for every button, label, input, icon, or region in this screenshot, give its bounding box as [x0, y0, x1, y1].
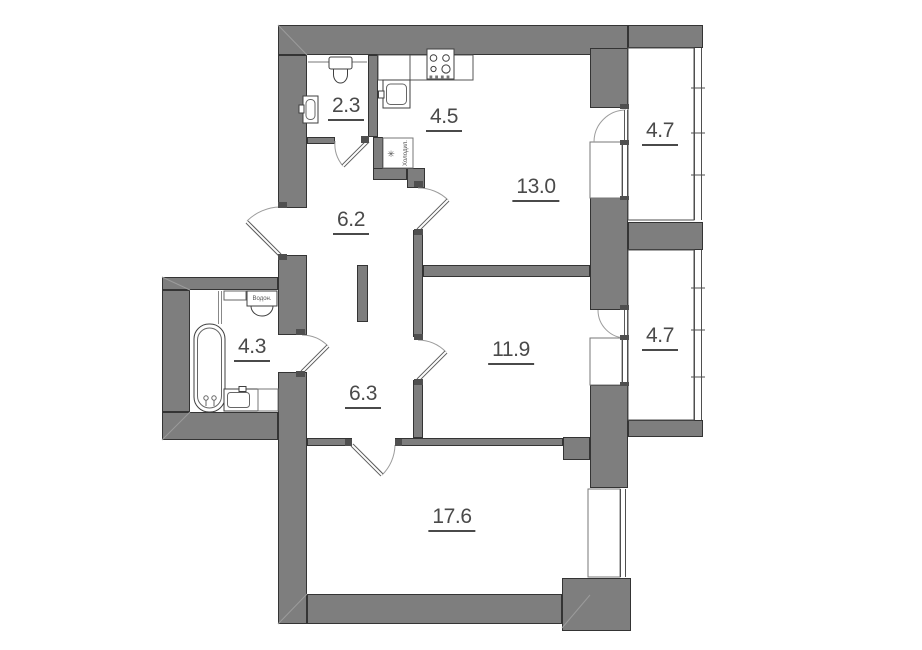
- bathtub-fixture: [194, 324, 225, 412]
- window-niches: [588, 142, 622, 577]
- door-arc-entrance: [247, 207, 280, 221]
- door-arc-bedroom: [418, 340, 446, 352]
- balcony-outlines: [628, 48, 694, 420]
- door-swing-arcs: [247, 110, 626, 475]
- bathroom-shelf: [224, 291, 246, 300]
- door-arc-balcony-right: [598, 310, 626, 338]
- room-label-bathroom: 4.3: [234, 336, 270, 362]
- balcony-glazing: [691, 48, 705, 420]
- room-label-balcony-right: 4.7: [642, 325, 678, 351]
- floor-plan: ✳ Холодил. Водон.: [0, 0, 922, 650]
- fridge-fixture: ✳ Холодил.: [383, 138, 413, 168]
- bathroom-sink-fixture: [224, 387, 278, 412]
- fridge-symbol: ✳: [387, 149, 395, 159]
- plan-linework: ✳ Холодил. Водон.: [0, 0, 922, 650]
- room-label-bedroom-large: 17.6: [428, 506, 475, 532]
- room-label-hallway: 6.2: [333, 209, 369, 235]
- door-arc-bathroom: [302, 335, 328, 346]
- bathroom-partition: [219, 291, 222, 324]
- kitchen-sink-fixture: [379, 80, 411, 108]
- room-label-balcony-top: 4.7: [642, 120, 678, 146]
- room-label-living-room: 13.0: [512, 176, 559, 202]
- room-label-kitchen: 4.5: [426, 106, 462, 132]
- door-arc-bedroom-large: [382, 445, 395, 475]
- door-jamb-nubs: [278, 104, 629, 446]
- room-label-wc: 2.3: [328, 95, 364, 121]
- door-arc-balcony-top: [594, 110, 626, 142]
- door-leaves-outer: [247, 110, 626, 475]
- door-leaves-inner: [247, 110, 626, 475]
- room-label-corridor: 6.3: [345, 383, 381, 409]
- toilet-fixture: [329, 57, 352, 83]
- fridge-label: Холодил.: [403, 140, 409, 166]
- wall-corner-miters: [162, 25, 590, 628]
- kitchen-counter: [378, 55, 473, 80]
- window-bedroom-large: [621, 489, 626, 577]
- water-heater-fixture: Водон.: [247, 291, 277, 316]
- window-living-room: [623, 142, 628, 198]
- wc-sink-fixture: [299, 96, 318, 123]
- room-label-bedroom: 11.9: [488, 339, 534, 365]
- water-heater-label: Водон.: [252, 296, 271, 302]
- door-arc-living-room: [418, 188, 448, 200]
- door-arc-wc: [335, 141, 343, 166]
- window-bedroom: [623, 338, 628, 385]
- stove-fixture: [427, 49, 454, 79]
